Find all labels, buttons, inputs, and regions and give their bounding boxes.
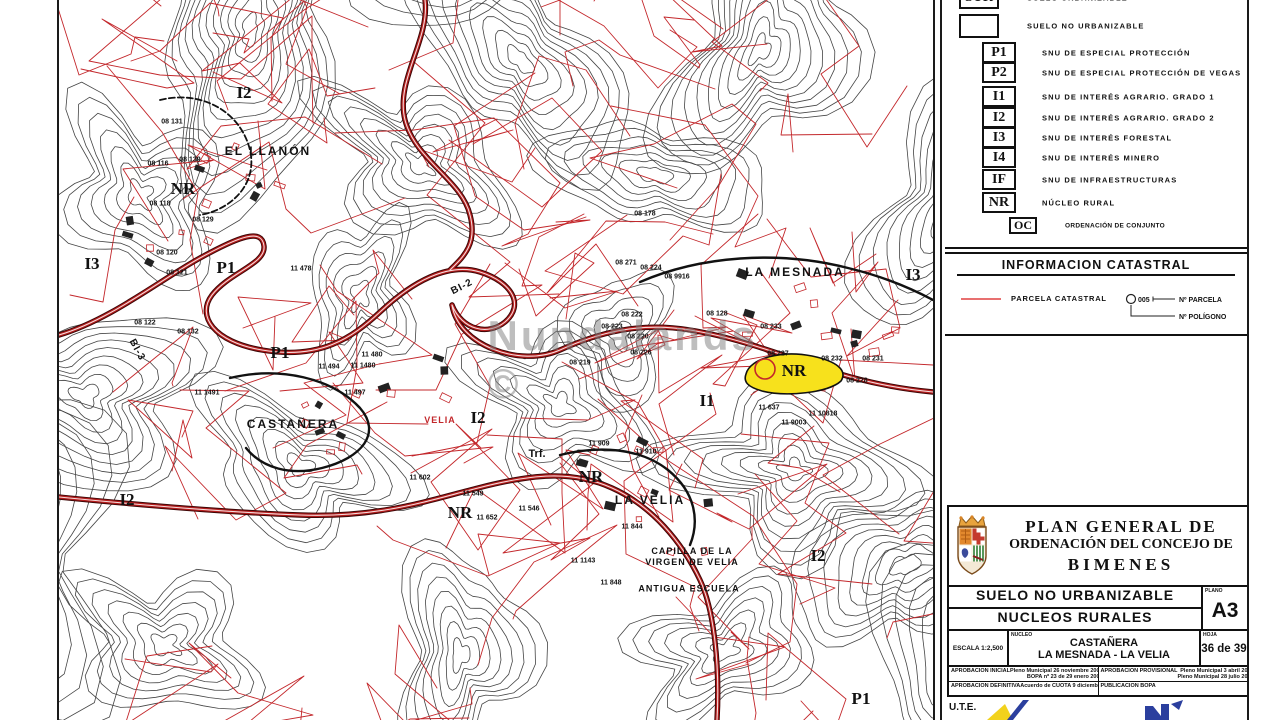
legend-code-box: I2 — [982, 107, 1016, 128]
poligono-number-label: Nº POLÍGONO — [1179, 312, 1227, 321]
subtitle-line2: NUCLEOS RURALES — [949, 609, 1201, 629]
legend-item-label: SNU DE INTERÉS FORESTAL — [1042, 133, 1172, 142]
aprobacion-definitiva-value: Acuerdo de CUOTA 9 diciembre 2010 — [1020, 683, 1098, 694]
panel-right-border — [1247, 0, 1249, 720]
plan-map-sheet: { "watermark": "Nundalands ©", "colors":… — [0, 0, 1280, 720]
legend-code-box: P2 — [982, 62, 1016, 83]
legend-item-SUR: SURSUELO URBANIZABLE — [945, 0, 1245, 9]
legend-items: SURSUELO URBANIZABLESUELO NO URBANIZABLE… — [945, 0, 1245, 247]
legend-item-label: ORDENACIÓN DE CONJUNTO — [1065, 222, 1165, 229]
legend-item-I3: I3SNU DE INTERÉS FORESTAL — [945, 127, 1245, 148]
watermark: Nundalands © — [488, 312, 793, 408]
legend-code-box: P1 — [982, 42, 1016, 63]
legend-item-NR: NRNÚCLEO RURAL — [945, 192, 1245, 213]
legend-code-box: NR — [982, 192, 1016, 213]
map-frame-border — [940, 0, 942, 720]
map-frame-border — [933, 0, 935, 720]
legend-code-box: IF — [982, 169, 1016, 190]
aprobacion-provisional-cell: APROBACION PROVISIONAL Pleno Municipal 3… — [1099, 667, 1248, 681]
hoja-value: 36 de 39 — [1201, 643, 1247, 655]
legend-code-box: I1 — [982, 86, 1016, 107]
subtitle-line1: SUELO NO URBANIZABLE — [949, 587, 1201, 609]
legend-item-snu: SUELO NO URBANIZABLE — [945, 14, 1245, 38]
legend-item-label: SUELO NO URBANIZABLE — [1027, 22, 1144, 31]
aprobacion-definitiva-label: APROBACION DEFINITIVA — [951, 683, 1020, 694]
aprobacion-inicial-value: Pleno Municipal 26 noviembre 2007BOPA nº… — [1010, 668, 1099, 680]
plano-label: PLANO — [1205, 588, 1223, 594]
legend-item-IF: IFSNU DE INFRAESTRUCTURAS — [945, 169, 1245, 190]
title-block: PLAN GENERAL DE ORDENACIÓN DEL CONCEJO D… — [947, 505, 1249, 697]
legend-panel: SURSUELO URBANIZABLESUELO NO URBANIZABLE… — [945, 0, 1280, 720]
aprobacion-inicial-label: APROBACION INICIAL — [951, 668, 1010, 680]
publicacion-bopa-label: PUBLICACION BOPA — [1101, 683, 1156, 694]
scale-nucleo-row: ESCALA 1:2,500 NUCLEO CASTAÑERA LA MESNA… — [949, 631, 1247, 667]
ute-label: U.T.E. — [949, 702, 976, 713]
legend-item-label: SNU DE INTERÉS AGRARIO. GRADO 2 — [1042, 113, 1215, 122]
legend-item-label: SUELO URBANIZABLE — [1027, 0, 1128, 3]
legend-item-label: NÚCLEO RURAL — [1042, 198, 1115, 207]
catastral-title: INFORMACION CATASTRAL — [957, 258, 1235, 276]
catastral-legend-row: PARCELA CATASTRAL 005 Nº PARCELA Nº POLÍ… — [945, 288, 1247, 328]
legend-item-label: SNU DE ESPECIAL PROTECCIÓN — [1042, 48, 1190, 57]
hoja-cell: HOJA 36 de 39 — [1201, 631, 1247, 665]
legend-item-label: SNU DE ESPECIAL PROTECCIÓN DE VEGAS — [1042, 68, 1241, 77]
legend-code-box — [959, 14, 999, 38]
plan-title-line1: PLAN GENERAL DE — [995, 517, 1247, 537]
legend-code-box: OC — [1009, 217, 1037, 234]
legend-item-I4: I4SNU DE INTERÉS MINERO — [945, 147, 1245, 168]
subtitle-row: SUELO NO URBANIZABLE NUCLEOS RURALES PLA… — [949, 587, 1247, 631]
ute-row: U.T.E. — [945, 694, 1247, 720]
aprobacion-provisional-value: Pleno Municipal 3 abril 2009Pleno Munici… — [1178, 668, 1247, 680]
parcela-number-label: Nº PARCELA — [1179, 297, 1222, 304]
parcela-catastral-label: PARCELA CATASTRAL — [1011, 294, 1107, 303]
ute-consultant-logo-1 — [983, 700, 1053, 720]
plan-title-line2: ORDENACIÓN DEL CONCEJO DE — [995, 537, 1247, 553]
title-row: PLAN GENERAL DE ORDENACIÓN DEL CONCEJO D… — [949, 507, 1247, 587]
escala-cell: ESCALA 1:2,500 — [949, 631, 1009, 665]
nucleo-name-line2: LA MESNADA - LA VELIA — [1009, 649, 1199, 661]
sheet-subtitle: SUELO NO URBANIZABLE NUCLEOS RURALES — [949, 587, 1203, 629]
map-area: EL LLANÓNLA MESNADACASTAÑERALA VELIAVELI… — [0, 0, 945, 720]
sheet-left-margin — [0, 0, 59, 720]
bimenes-coat-of-arms — [949, 514, 995, 578]
plan-title: PLAN GENERAL DE ORDENACIÓN DEL CONCEJO D… — [995, 517, 1247, 575]
legend-item-I1: I1SNU DE INTERÉS AGRARIO. GRADO 1 — [945, 86, 1245, 107]
legend-item-P2: P2SNU DE ESPECIAL PROTECCIÓN DE VEGAS — [945, 62, 1245, 83]
sample-parcel-number: 005 — [1138, 297, 1150, 304]
legend-code-box: I3 — [982, 127, 1016, 148]
cadastral-parcel-line-sample — [961, 298, 1001, 300]
approval-row-1: APROBACION INICIAL Pleno Municipal 26 no… — [949, 667, 1247, 682]
legend-item-label: SNU DE INTERÉS AGRARIO. GRADO 1 — [1042, 92, 1215, 101]
legend-code-box: SUR — [959, 0, 999, 9]
aprobacion-provisional-label: APROBACION PROVISIONAL — [1101, 668, 1178, 680]
legend-item-label: SNU DE INTERÉS MINERO — [1042, 153, 1160, 162]
ute-consultant-logo-2 — [1141, 700, 1191, 720]
legend-item-label: SNU DE INFRAESTRUCTURAS — [1042, 175, 1177, 184]
parcel-number-diagram: 005 Nº PARCELA Nº POLÍGONO — [1123, 288, 1241, 328]
legend-item-P1: P1SNU DE ESPECIAL PROTECCIÓN — [945, 42, 1245, 63]
plan-title-line3: BIMENES — [995, 555, 1247, 575]
aprobacion-inicial-cell: APROBACION INICIAL Pleno Municipal 26 no… — [949, 667, 1099, 681]
legend-item-OC: OCORDENACIÓN DE CONJUNTO — [945, 217, 1245, 234]
plano-value: A3 — [1203, 599, 1247, 623]
catastral-info-section: INFORMACION CATASTRAL PARCELA CATASTRAL … — [945, 252, 1247, 336]
nucleo-name-line1: CASTAÑERA — [1009, 637, 1199, 649]
legend-code-box: I4 — [982, 147, 1016, 168]
legend-item-I2: I2SNU DE INTERÉS AGRARIO. GRADO 2 — [945, 107, 1245, 128]
nucleo-cell: NUCLEO CASTAÑERA LA MESNADA - LA VELIA — [1009, 631, 1201, 665]
hoja-label: HOJA — [1203, 632, 1217, 638]
nucleo-label: NUCLEO — [1011, 632, 1032, 638]
plano-cell: PLANO A3 — [1203, 587, 1247, 629]
